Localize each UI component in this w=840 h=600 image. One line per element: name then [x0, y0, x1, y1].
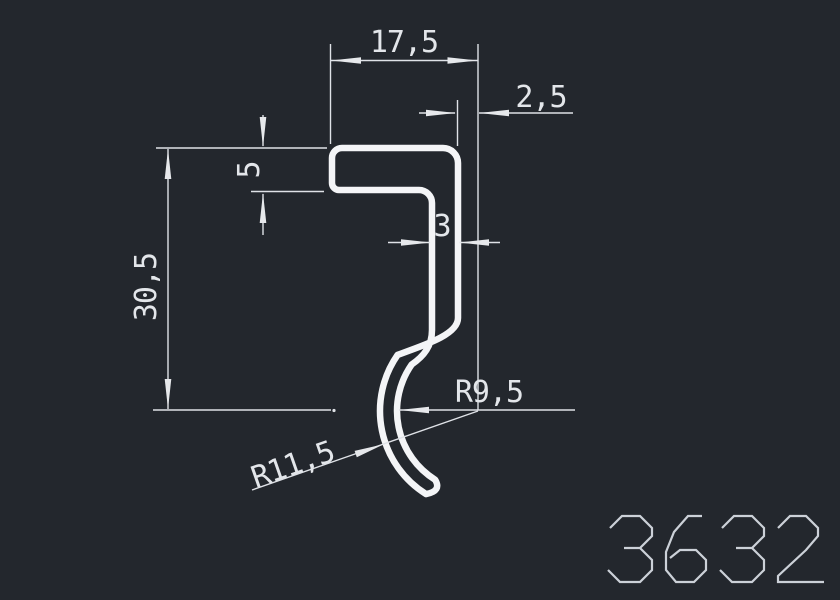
dimension-radius-inner: R9,5: [399, 375, 575, 413]
dimension-wall-thickness: 3: [388, 209, 500, 246]
arrowhead-up: [260, 193, 267, 223]
dimension-label: 17,5: [370, 25, 438, 60]
part-number-digit: [608, 516, 652, 582]
cad-drawing-canvas: 17,5 2,5 5 30,5 3 R9: [0, 0, 840, 600]
arrowhead-right: [401, 239, 431, 246]
arrowhead-right: [479, 110, 509, 117]
part-number-digit: [666, 516, 706, 582]
part-number-digit: [720, 516, 764, 582]
arrowhead-left: [399, 407, 429, 414]
arrowhead-down: [165, 379, 172, 409]
arrowhead-left: [426, 110, 456, 117]
dimension-label: 3: [433, 209, 450, 244]
part-number-digit: [778, 516, 824, 582]
dimension-radius-outer: R11,5: [247, 411, 478, 496]
arrowhead-outward: [355, 444, 384, 457]
dimension-offset-top-right: 2,5: [419, 80, 573, 146]
part-number: [608, 516, 824, 582]
dimension-label: 30,5: [129, 253, 164, 321]
arrowhead-down: [260, 117, 267, 147]
dimension-height-left: 30,5: [129, 149, 336, 412]
extension-endpoint-dot: [332, 409, 335, 412]
arrowhead-left: [459, 239, 489, 246]
arrowhead-up: [165, 149, 172, 179]
arrowhead-right: [448, 57, 478, 64]
dimension-label: R9,5: [455, 375, 523, 410]
profile-outline: [332, 148, 458, 494]
arrowhead-left: [331, 57, 361, 64]
dimension-label: R11,5: [247, 434, 339, 495]
dimension-label: 5: [232, 161, 267, 178]
dimension-label: 2,5: [515, 80, 566, 115]
dimension-flange-thickness: 5: [156, 115, 327, 235]
